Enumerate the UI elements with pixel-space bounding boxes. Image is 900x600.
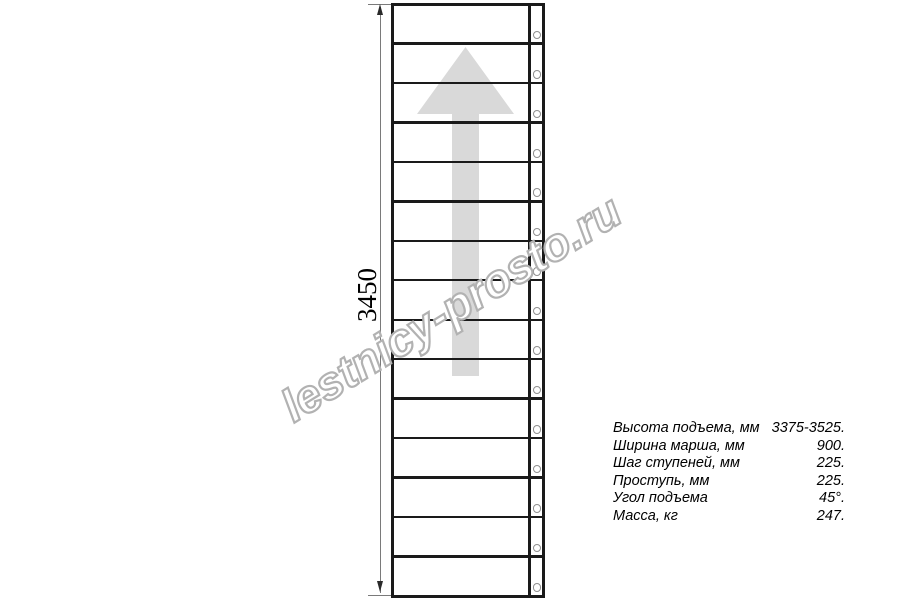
bolt-circle — [533, 425, 542, 434]
bolt-circle — [533, 504, 542, 513]
spec-value: 45°. — [819, 490, 845, 508]
spec-value: 225. — [817, 455, 845, 473]
bolt-circle — [533, 70, 542, 79]
spec-label: Ширина марша, мм — [613, 438, 745, 456]
spec-label: Проступь, мм — [613, 473, 709, 491]
bolt-circle — [533, 307, 542, 316]
dimension-arrowhead-down-icon — [377, 581, 383, 592]
spec-row: Шаг ступеней, мм225. — [613, 455, 845, 473]
spec-row: Ширина марша, мм900. — [613, 438, 845, 456]
staircase-drawing-canvas: 3450 lestnicy-prosto.ru Высота подъема, … — [0, 0, 900, 600]
spec-value: 225. — [817, 473, 845, 491]
dimension-arrowhead-up-icon — [377, 4, 383, 15]
spec-label: Высота подъема, мм — [613, 420, 760, 438]
bolt-circle — [533, 386, 542, 395]
specs-table: Высота подъема, мм3375-3525.Ширина марша… — [613, 420, 845, 526]
spec-label: Масса, кг — [613, 508, 678, 526]
spec-value: 900. — [817, 438, 845, 456]
spec-row: Масса, кг247. — [613, 508, 845, 526]
bolt-circle — [533, 465, 542, 474]
spec-row: Высота подъема, мм3375-3525. — [613, 420, 845, 438]
spec-row: Проступь, мм225. — [613, 473, 845, 491]
bolt-circle — [533, 544, 542, 553]
bolt-circle — [533, 346, 542, 355]
spec-value: 3375-3525. — [772, 420, 845, 438]
dimension-extension-line-bottom — [368, 595, 391, 596]
spec-label: Шаг ступеней, мм — [613, 455, 740, 473]
bolt-circle — [533, 583, 542, 592]
bolt-circle — [533, 110, 542, 119]
spec-label: Угол подъема — [613, 490, 708, 508]
bolt-circle — [533, 188, 542, 197]
spec-value: 247. — [817, 508, 845, 526]
spec-row: Угол подъема45°. — [613, 490, 845, 508]
bolt-circle — [533, 149, 542, 158]
bolt-circle — [533, 31, 542, 40]
